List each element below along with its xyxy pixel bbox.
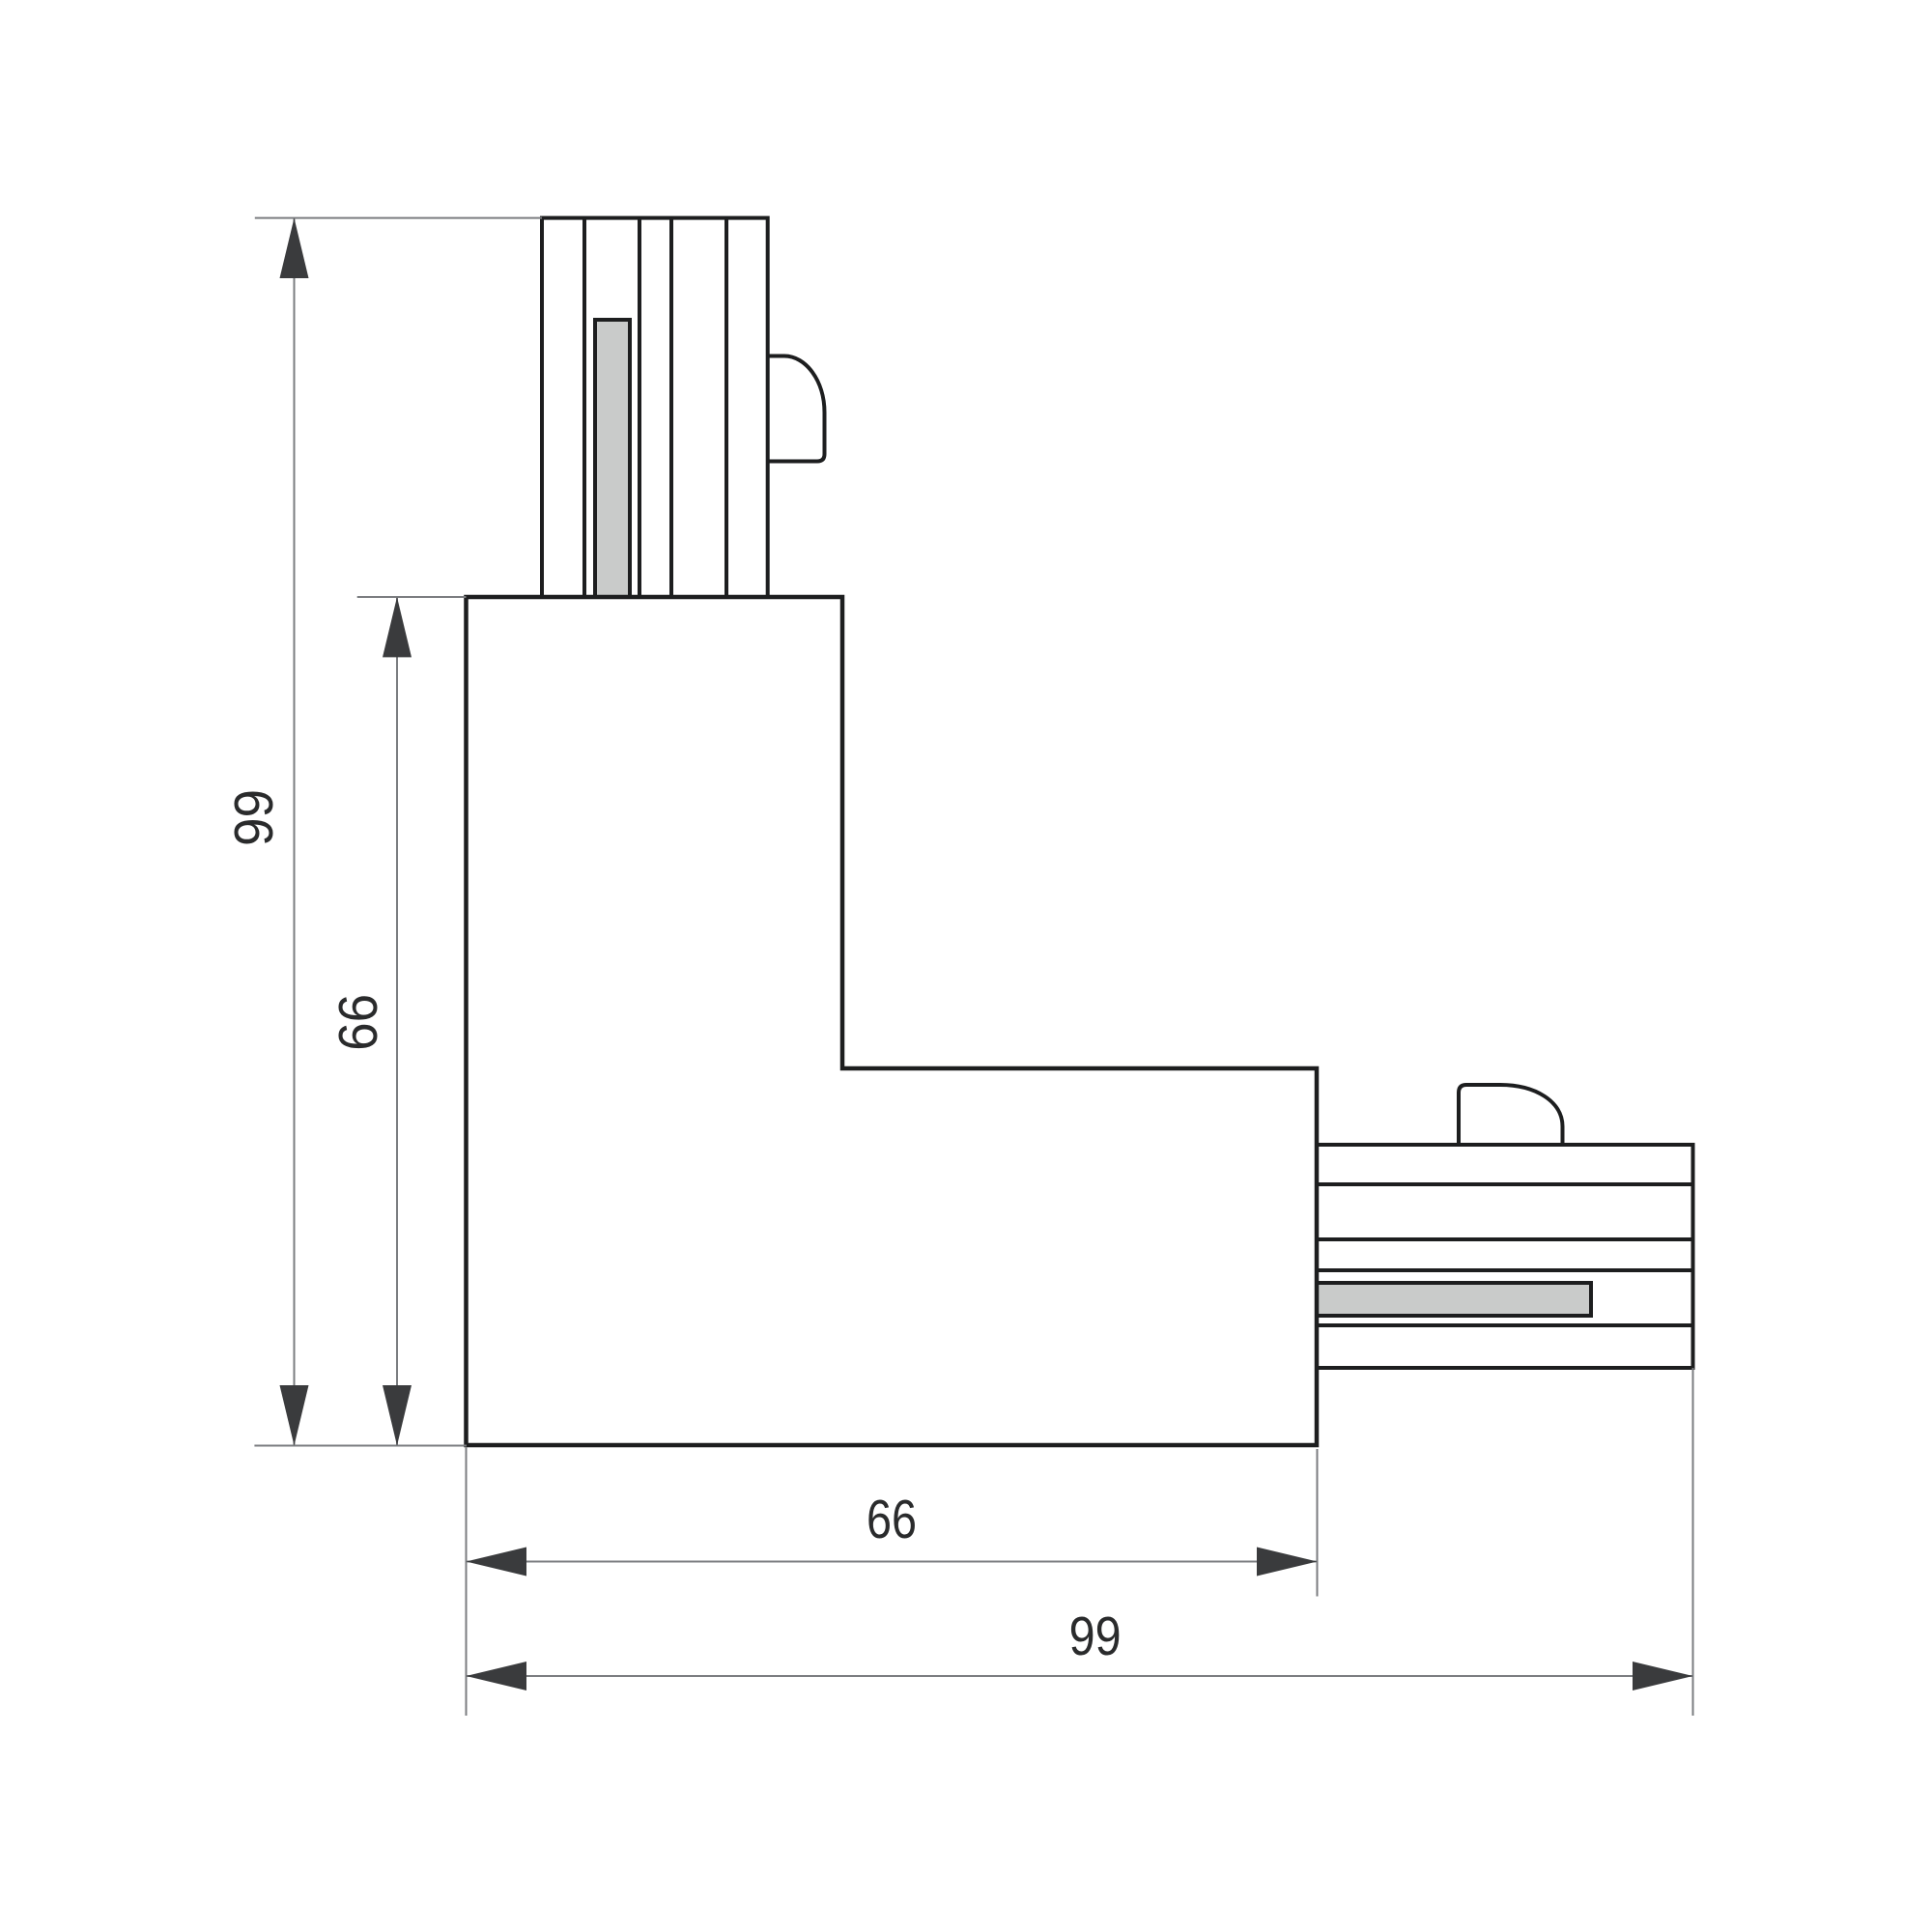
svg-text:66: 66 bbox=[327, 994, 389, 1051]
svg-text:66: 66 bbox=[867, 1489, 917, 1550]
svg-text:99: 99 bbox=[223, 789, 285, 846]
svg-text:99: 99 bbox=[1069, 1605, 1122, 1667]
